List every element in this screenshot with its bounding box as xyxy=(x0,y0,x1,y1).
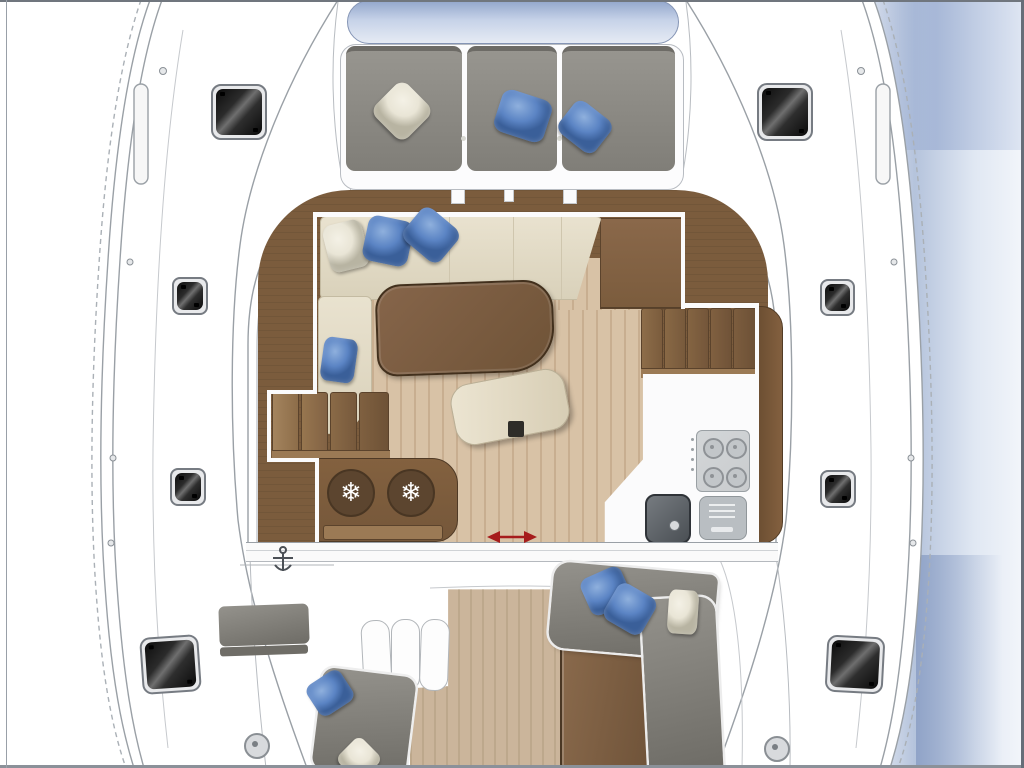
salon-wall xyxy=(315,458,319,545)
snowflake-icon: ❄ xyxy=(340,480,362,506)
salon-wall xyxy=(681,212,685,309)
burner-icon xyxy=(726,438,747,459)
starboard-curved-cabinet xyxy=(755,306,783,544)
port-hatch xyxy=(170,468,206,506)
deck-screw xyxy=(108,540,114,546)
stove-knob xyxy=(691,458,694,461)
stove xyxy=(696,430,750,492)
frame-top xyxy=(0,0,1024,2)
salon-table xyxy=(374,279,555,377)
freezer-icon: ❄ xyxy=(387,469,435,517)
cushion-button xyxy=(557,136,562,141)
starboard-hatch xyxy=(820,279,855,316)
salon-wall-top xyxy=(313,212,685,217)
starboard-hatch xyxy=(825,635,886,695)
deck-screw xyxy=(127,259,133,265)
bow-sunpad xyxy=(347,0,679,44)
port-hatch xyxy=(172,277,208,315)
cockpit-step xyxy=(419,619,450,692)
stove-knob xyxy=(691,468,694,471)
fridge-icon: ❄ xyxy=(327,469,375,517)
deck-screw xyxy=(110,455,116,461)
salon-pillow-blue xyxy=(319,336,359,384)
stove-knob xyxy=(691,438,694,441)
frame-left xyxy=(6,0,7,768)
deck-screw xyxy=(891,259,897,265)
anchor-icon xyxy=(268,544,298,578)
deck-fitting xyxy=(244,733,270,759)
table-floor-mount xyxy=(508,421,524,437)
cockpit-pillow-cream xyxy=(667,589,700,635)
cushion-button xyxy=(461,136,466,141)
oven xyxy=(699,496,747,540)
salon-wall xyxy=(267,458,319,462)
port-rub-rail xyxy=(134,84,148,184)
salon-wall-left xyxy=(313,212,317,394)
salon-wall-right xyxy=(755,303,759,545)
starboard-rub-rail xyxy=(876,84,890,184)
fridge-front-edge xyxy=(323,525,443,540)
nav-cabinet xyxy=(600,218,683,309)
burner-icon xyxy=(703,467,724,488)
sink xyxy=(645,494,691,544)
windshield-mullion xyxy=(504,189,514,202)
deck-fitting xyxy=(764,736,790,762)
starboard-stairs xyxy=(641,308,757,377)
salon-wall xyxy=(267,390,271,462)
salon-wall xyxy=(681,303,759,308)
port-hatch xyxy=(139,634,202,695)
snowflake-icon: ❄ xyxy=(400,480,422,506)
starboard-hatch xyxy=(820,470,856,508)
stove-knob xyxy=(691,448,694,451)
deck-screw xyxy=(908,455,914,461)
windshield-mullion xyxy=(451,189,465,204)
cockpit-bench xyxy=(218,603,309,646)
burner-icon xyxy=(703,438,724,459)
windshield-mullion xyxy=(563,189,577,204)
salon-wall xyxy=(267,390,317,394)
deck-screw xyxy=(858,68,865,75)
fridge-counter: ❄ ❄ xyxy=(318,458,458,542)
burner-icon xyxy=(726,467,747,488)
deck-screw xyxy=(160,68,167,75)
deck-screw xyxy=(910,540,916,546)
starboard-hatch xyxy=(757,83,813,141)
faucet-icon xyxy=(669,520,680,531)
catamaran-deck-plan: ❄ ❄ xyxy=(0,0,1024,768)
sliding-door-arrow xyxy=(485,528,539,546)
port-hatch xyxy=(211,84,267,140)
port-stairs xyxy=(272,392,390,460)
